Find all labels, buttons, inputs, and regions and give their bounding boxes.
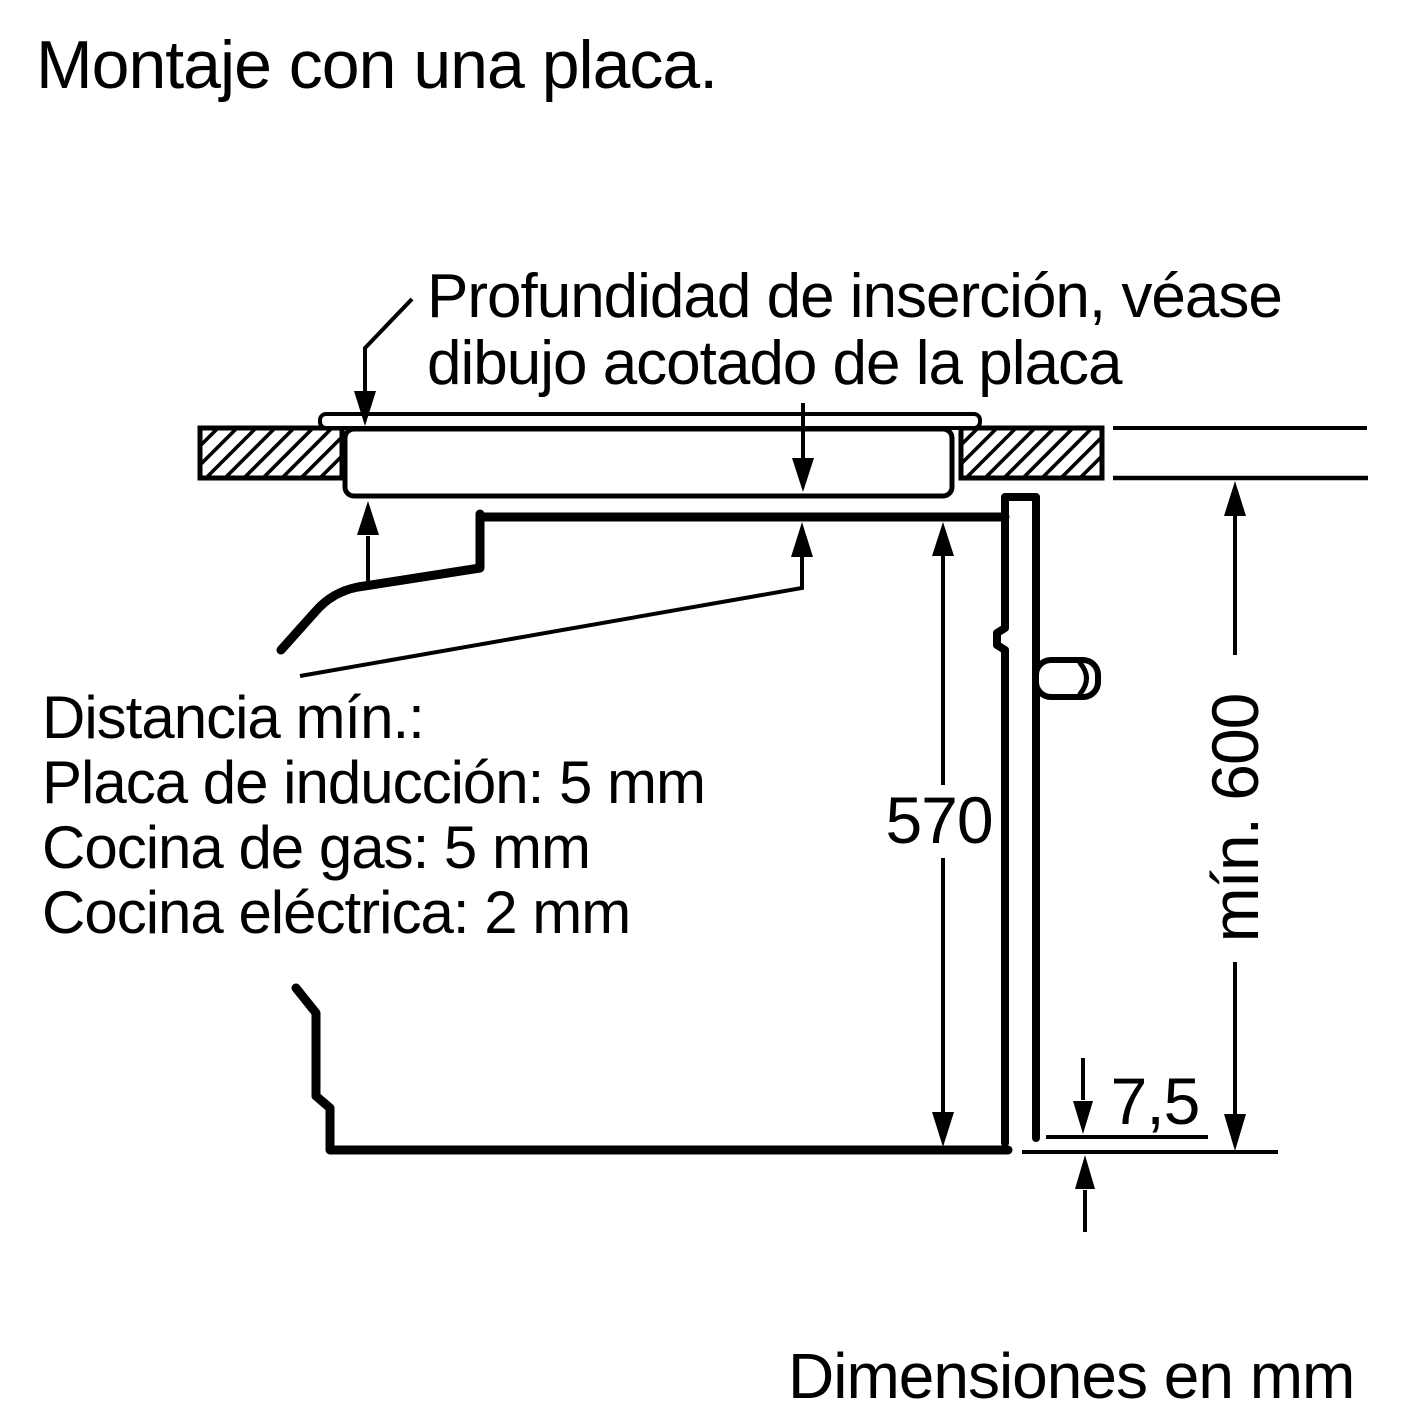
min-distance-text-line1: Distancia mín.: (42, 684, 424, 751)
min-distance-text-line2: Placa de inducción: 5 mm (42, 749, 705, 816)
min-distance-text-line3: Cocina de gas: 5 mm (42, 814, 590, 881)
installation-diagram: Montaje con una placa. (0, 0, 1406, 1406)
countertop-right-hatch (961, 428, 1102, 478)
dim-570-value: 570 (885, 783, 992, 857)
countertop-left-block (200, 428, 342, 478)
min-distance-text-line4: Cocina eléctrica: 2 mm (42, 879, 630, 946)
dim-600-value: mín. 600 (1198, 694, 1272, 943)
dim-75-value: 7,5 (1111, 1064, 1200, 1138)
hob-glass-top (320, 414, 980, 428)
units-note: Dimensiones en mm (788, 1340, 1354, 1406)
insertion-depth-text-line1: Profundidad de inserción, véase (427, 262, 1282, 331)
countertop-left-hatch (200, 428, 342, 478)
countertop-right-block (961, 428, 1102, 478)
hob-body (345, 429, 952, 496)
insertion-depth-text-line2: dibujo acotado de la placa (427, 329, 1123, 398)
hob (320, 414, 980, 496)
page-title: Montaje con una placa. (36, 27, 717, 103)
